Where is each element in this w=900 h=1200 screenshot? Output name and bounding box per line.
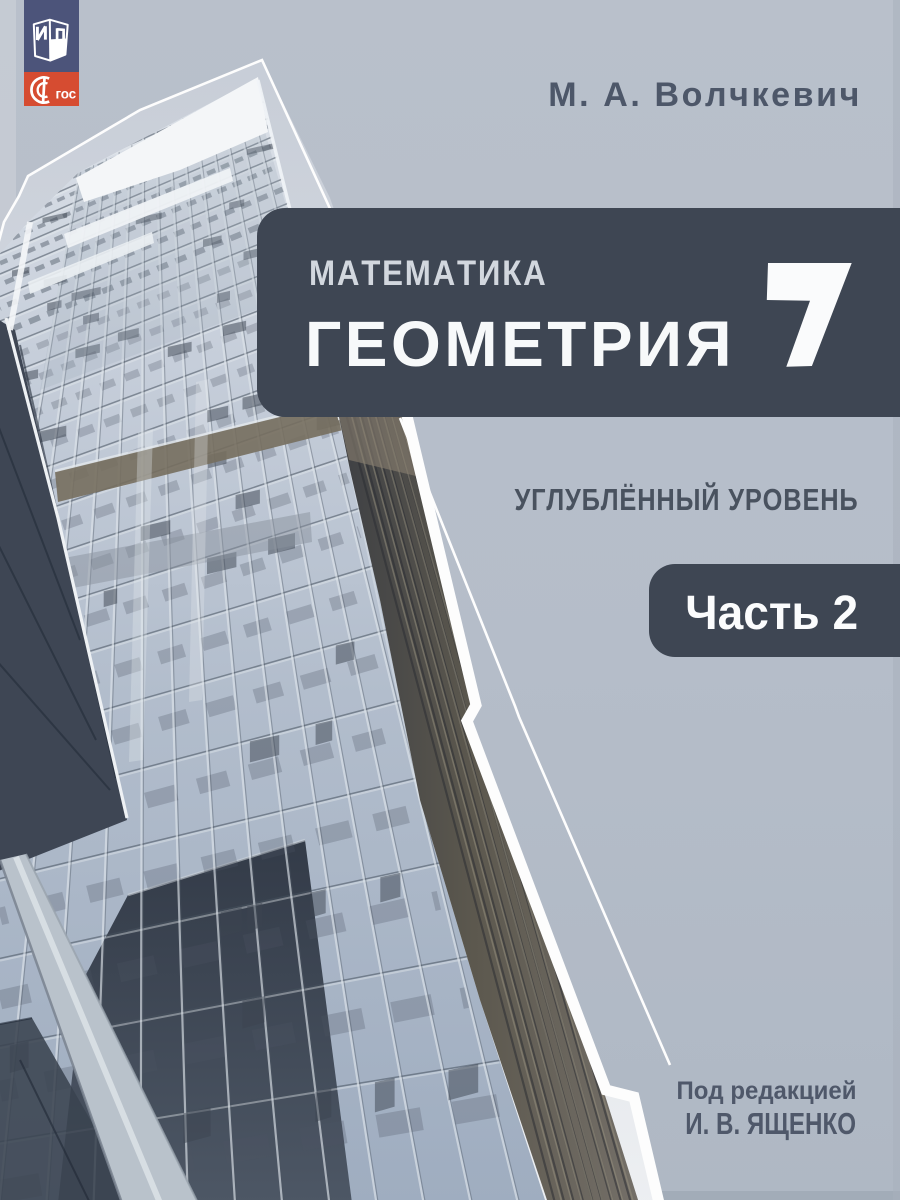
svg-text:гос: гос xyxy=(56,86,77,101)
